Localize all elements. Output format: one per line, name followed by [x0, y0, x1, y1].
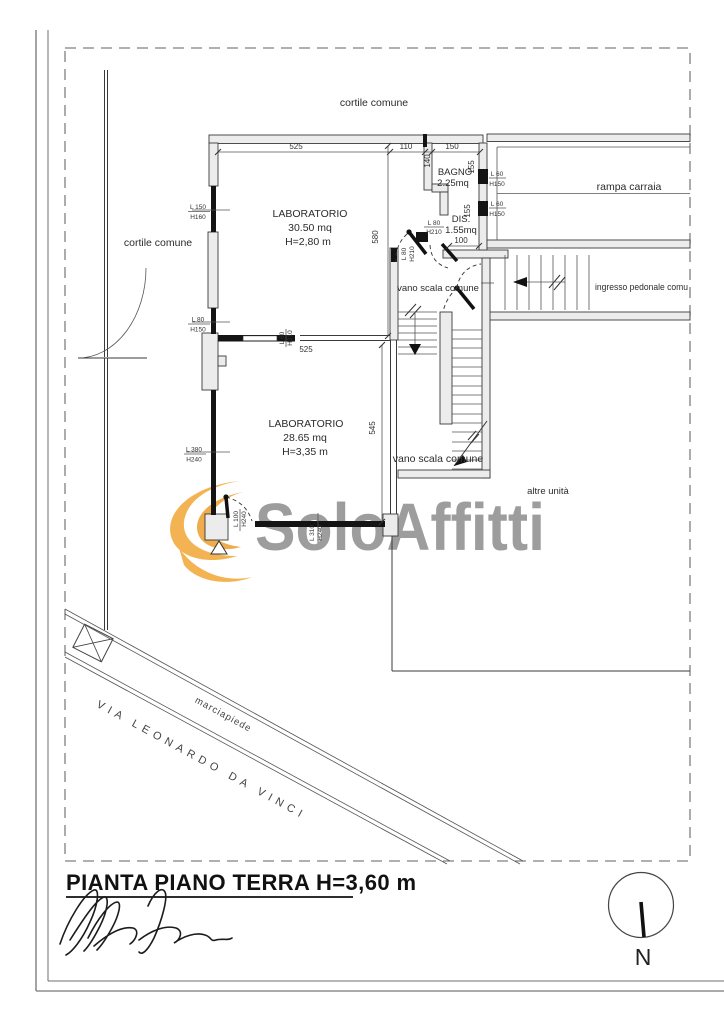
north-label: N: [635, 944, 652, 970]
dim-525-top: 525: [289, 142, 303, 151]
opening-w3-l: L 380: [186, 447, 202, 454]
north-compass: N: [609, 873, 674, 971]
lab2-area: 28.65 mq: [283, 432, 327, 444]
opening-w9-h: H150: [489, 181, 505, 188]
dim-545: 545: [368, 421, 377, 435]
direction-arrow: [513, 277, 527, 287]
label-cortile-top: cortile comune: [340, 97, 408, 109]
bagno-area: 2.25mq: [437, 178, 469, 189]
stairs-down-arrow: [409, 344, 421, 355]
dim-150: 150: [445, 142, 459, 151]
lab1-height: H=2,80 m: [285, 236, 331, 248]
gate-swing-arc: [78, 268, 146, 358]
page-title: PIANTA PIANO TERRA H=3,60 m: [66, 870, 416, 895]
opening-w6-h: H210: [287, 330, 294, 346]
label-street: VIA LEONARDO DA VINCI: [94, 699, 308, 823]
title-block: PIANTA PIANO TERRA H=3,60 m: [60, 870, 416, 955]
opening-w9-l: L 60: [491, 171, 504, 178]
lab1-area: 30.50 mq: [288, 222, 332, 234]
opening-w7-h: H210: [426, 229, 442, 236]
dim-525-mid: 525: [299, 345, 313, 354]
opening-w8-l: L 80: [401, 247, 408, 260]
opening-w5-h: H240: [317, 525, 324, 541]
opening-w10-h: H150: [489, 211, 505, 218]
opening-w6-l: L 60: [279, 331, 286, 344]
courtyard-wall: [73, 70, 147, 662]
opening-w1-h: H160: [190, 214, 206, 221]
ramp-lines: [497, 147, 690, 240]
label-ingresso: ingresso pedonale comu: [595, 282, 688, 293]
opening-w4-l: L 100: [233, 511, 240, 527]
signature: [60, 890, 232, 955]
watermark-text: SoloAffitti: [255, 490, 545, 565]
area-labels: cortile comune cortile comune LABORATORI…: [94, 97, 688, 822]
scanned-floor-plan-sheet: SoloAffitti: [0, 0, 724, 1024]
opening-w5-l: L 310: [309, 525, 316, 541]
dis-name: DIS.: [452, 214, 470, 225]
dimension-lines: [184, 143, 506, 543]
dim-110: 110: [400, 142, 413, 151]
lab1-name: LABORATORIO: [273, 208, 348, 220]
label-cortile-left: cortile comune: [124, 237, 192, 249]
floor-plan-drawing: SoloAffitti: [0, 0, 724, 1024]
bagno-name: BAGNO: [438, 167, 472, 178]
dis-area: 1.55mq: [445, 225, 477, 236]
opening-w1-l: L 150: [190, 204, 206, 211]
opening-w2-h: H150: [190, 327, 206, 334]
dim-580: 580: [371, 230, 380, 244]
opening-w10-l: L 60: [491, 201, 504, 208]
opening-w7-l: L 80: [428, 220, 441, 227]
opening-w2-l: L 80: [192, 317, 205, 324]
label-vano-scala-1: vano scala comune: [397, 283, 479, 294]
dim-140: 140: [423, 154, 432, 168]
label-vano-scala-2: vano scala comune: [393, 453, 484, 465]
lab2-height: H=3,35 m: [282, 446, 328, 458]
dim-100: 100: [454, 236, 468, 245]
lab2-name: LABORATORIO: [269, 418, 344, 430]
compass-needle: [641, 902, 644, 937]
entry-steps: [505, 255, 589, 310]
opening-w4-h: H240: [241, 511, 248, 527]
opening-w8-h: H210: [409, 246, 416, 262]
sidewalk-lines: [65, 609, 523, 864]
label-altre-unita: altre unità: [527, 486, 569, 497]
label-rampa: rampa carraia: [597, 181, 662, 193]
opening-w3-h: H240: [186, 457, 202, 464]
